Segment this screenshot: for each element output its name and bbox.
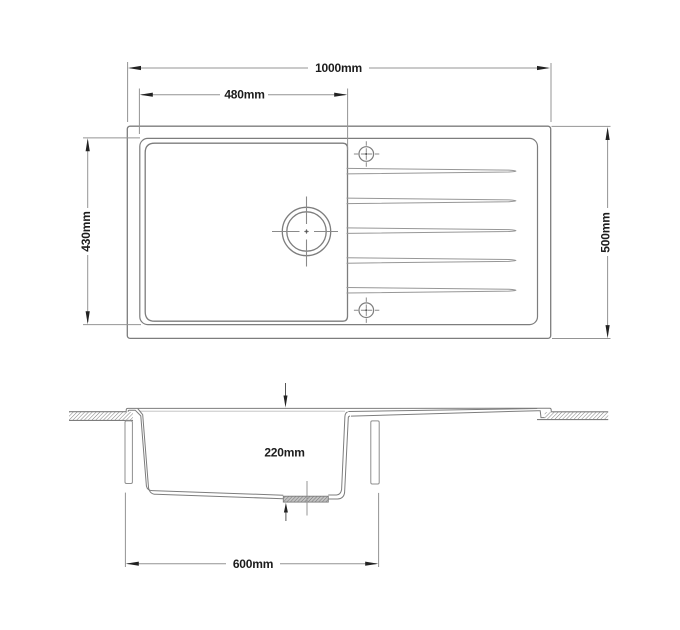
- svg-text:600mm: 600mm: [233, 557, 273, 571]
- svg-text:480mm: 480mm: [224, 88, 264, 102]
- svg-text:430mm: 430mm: [79, 211, 93, 251]
- svg-text:1000mm: 1000mm: [315, 61, 362, 75]
- svg-text:500mm: 500mm: [599, 212, 613, 252]
- svg-text:220mm: 220mm: [264, 446, 304, 460]
